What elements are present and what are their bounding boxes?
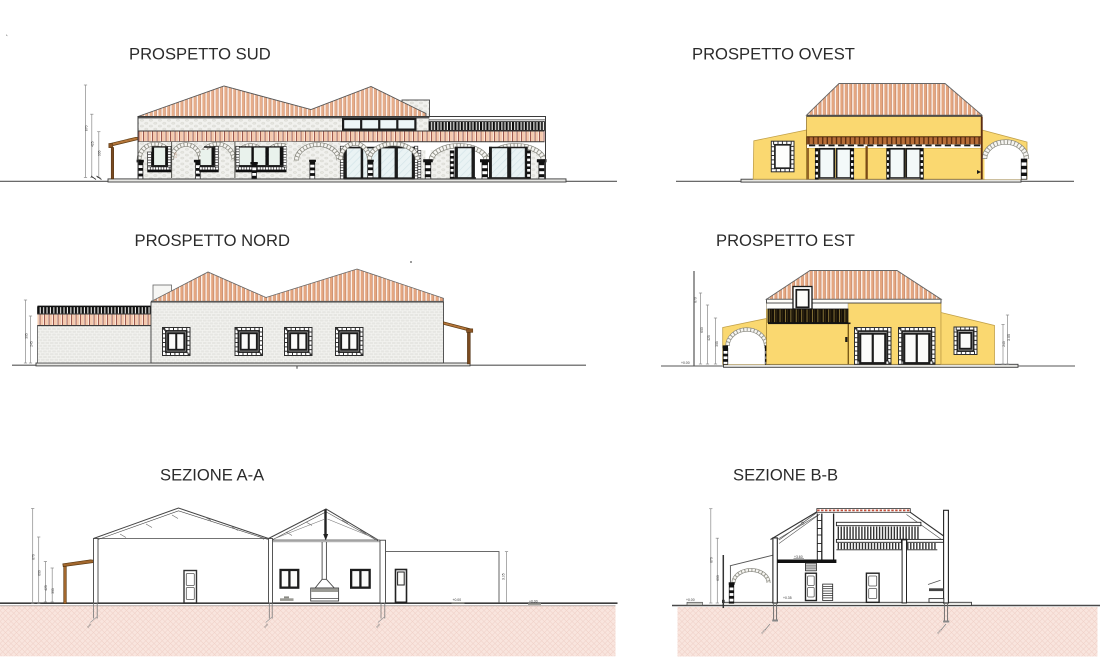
svg-text:870: 870 (693, 297, 697, 303)
svg-text:PROSPETTO NORD: PROSPETTO NORD (135, 231, 291, 250)
svg-text:425: 425 (44, 585, 48, 591)
svg-text:305: 305 (715, 341, 719, 347)
svg-text:305: 305 (98, 150, 102, 156)
svg-text:870: 870 (84, 125, 88, 131)
svg-text:600: 600 (716, 575, 720, 581)
svg-text:+0.35: +0.35 (783, 596, 792, 600)
svg-text:600: 600 (38, 570, 42, 576)
svg-text:+0.00: +0.00 (681, 361, 690, 365)
svg-text:SEZIONE B-B: SEZIONE B-B (733, 465, 838, 484)
svg-text:870: 870 (710, 557, 714, 563)
svg-text:245: 245 (1002, 341, 1006, 347)
svg-text:+0.00: +0.00 (529, 600, 538, 604)
svg-text:PROSPETTO SUD: PROSPETTO SUD (129, 45, 271, 64)
svg-text:PROSPETTO OVEST: PROSPETTO OVEST (692, 45, 855, 64)
svg-text:+0.00: +0.00 (686, 598, 695, 602)
svg-text:305: 305 (51, 588, 55, 594)
svg-text:305: 305 (24, 333, 28, 339)
svg-text:+3.60: +3.60 (794, 555, 803, 559)
svg-text:+0.00: +0.00 (453, 598, 462, 602)
svg-text:245: 245 (29, 341, 33, 347)
svg-text:SEZIONE A-A: SEZIONE A-A (160, 465, 265, 484)
svg-text:2.35: 2.35 (174, 152, 178, 158)
svg-text:PROSPETTO EST: PROSPETTO EST (716, 231, 855, 250)
svg-text:425: 425 (91, 141, 95, 147)
svg-text:425: 425 (707, 335, 711, 341)
svg-text:3.05: 3.05 (1007, 334, 1011, 341)
svg-text:870: 870 (32, 554, 36, 560)
svg-text:3.05: 3.05 (502, 573, 506, 580)
svg-text:600: 600 (700, 327, 704, 333)
